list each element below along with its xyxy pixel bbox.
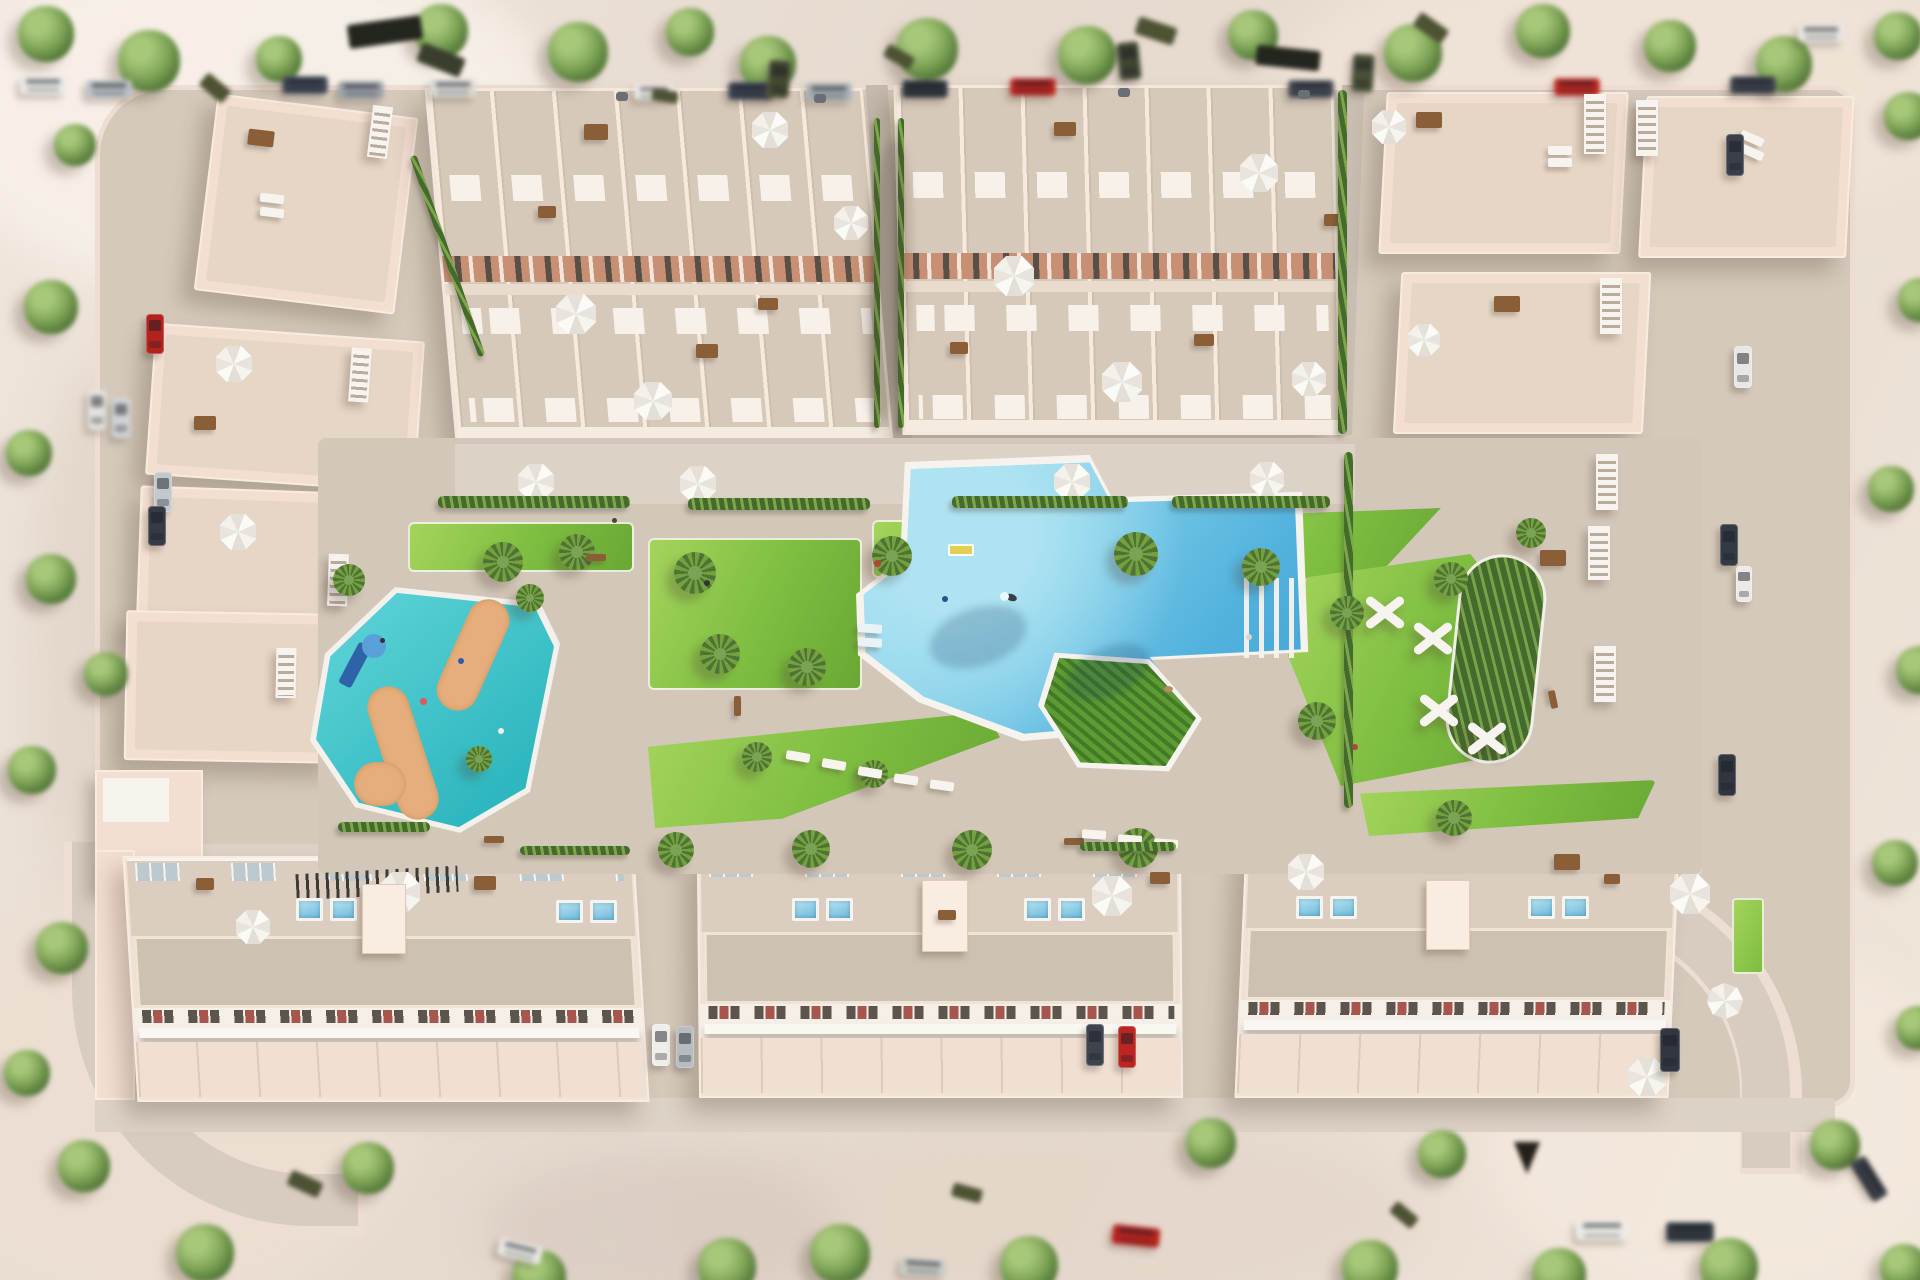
car [1718, 754, 1736, 796]
car [1736, 566, 1752, 602]
hedge [688, 498, 870, 510]
palm [658, 832, 694, 868]
tower [1426, 880, 1470, 950]
dot [612, 518, 617, 523]
scene-objects-layer [0, 0, 1920, 1280]
bench [484, 836, 504, 843]
bench [474, 876, 496, 890]
lounger [1548, 158, 1572, 167]
ppool [556, 900, 583, 923]
ppool [590, 900, 617, 923]
parasol [216, 346, 252, 382]
bench [734, 696, 741, 716]
kpath [430, 593, 516, 718]
bench [938, 910, 956, 920]
cross [1416, 688, 1462, 734]
car [652, 1024, 670, 1066]
parasol [994, 256, 1034, 296]
hedge [520, 846, 630, 855]
shadeb [921, 594, 1034, 680]
parasol [1703, 979, 1747, 1023]
lounger [785, 750, 810, 763]
parasol [680, 466, 716, 502]
bar [1298, 90, 1310, 99]
palm [674, 552, 716, 594]
hedge [410, 155, 486, 358]
palm [700, 634, 740, 674]
parasol [1408, 324, 1440, 356]
stair [1596, 454, 1618, 510]
lounger [1548, 146, 1572, 155]
parasol [1240, 154, 1278, 192]
parasol [634, 382, 672, 420]
dot [498, 728, 504, 734]
hedge [338, 822, 430, 832]
car [1118, 1026, 1136, 1068]
lounger [858, 623, 883, 634]
dot [420, 698, 427, 705]
palm [792, 830, 830, 868]
stair [1600, 278, 1622, 334]
parasol [752, 112, 788, 148]
dot [1352, 744, 1358, 750]
lounger [821, 758, 846, 771]
parasol [1092, 876, 1132, 916]
aerial-development-render [0, 0, 1920, 1280]
palm [788, 648, 826, 686]
ppool [330, 898, 357, 921]
bench [1548, 690, 1559, 709]
dot [704, 580, 710, 586]
ppool [826, 898, 853, 921]
palm [1114, 532, 1158, 576]
parasol [1250, 462, 1284, 496]
lounger [1082, 829, 1107, 840]
stair [348, 347, 372, 402]
bench [1416, 112, 1442, 128]
stair [1588, 526, 1610, 580]
bench [758, 298, 778, 310]
stair [276, 648, 297, 698]
dot [380, 638, 385, 643]
parasol [236, 910, 270, 944]
bench [1540, 550, 1566, 566]
lounger [929, 779, 954, 791]
hedge [438, 496, 630, 508]
hedge [1338, 90, 1347, 434]
grassrect [1732, 898, 1764, 974]
hedge [1080, 842, 1176, 851]
car [1660, 1028, 1680, 1072]
car [1720, 524, 1738, 566]
parasol [1372, 110, 1406, 144]
tower [362, 884, 406, 954]
ppool [1562, 896, 1589, 919]
lounger [893, 773, 918, 785]
palm [742, 742, 772, 772]
bench [586, 554, 606, 561]
parasol [1102, 362, 1142, 402]
bar [616, 92, 628, 101]
dot [458, 658, 464, 664]
shadeb [1058, 632, 1158, 712]
bench [194, 416, 216, 430]
bench [1494, 296, 1520, 312]
cross [1464, 716, 1510, 762]
parasol [1288, 854, 1324, 890]
bench [1554, 854, 1580, 870]
towel [948, 544, 974, 556]
cross [1362, 590, 1408, 636]
palm [1434, 562, 1468, 596]
dot [1246, 634, 1252, 640]
lounger [858, 637, 883, 648]
bench [1054, 122, 1076, 136]
shade [857, 137, 918, 423]
bar [1118, 88, 1130, 97]
palm [872, 536, 912, 576]
palm [333, 564, 365, 596]
hedge [1344, 452, 1353, 808]
bench [1604, 874, 1620, 884]
car [1726, 134, 1744, 176]
bar [814, 94, 826, 103]
palm [1330, 596, 1364, 630]
parasol [834, 206, 868, 240]
palm [952, 830, 992, 870]
stair [1594, 646, 1616, 702]
ppool [1024, 898, 1051, 921]
bench [247, 128, 275, 147]
car [1734, 346, 1752, 388]
car [676, 1026, 694, 1068]
car [1086, 1024, 1104, 1066]
cross [1410, 616, 1456, 662]
dot [874, 560, 881, 567]
dot [942, 596, 948, 602]
bench [584, 124, 608, 140]
ppool [296, 898, 323, 921]
hedge [1172, 496, 1330, 508]
palm [516, 584, 544, 612]
ppool [1296, 896, 1323, 919]
car [146, 314, 164, 354]
parasol [1670, 874, 1710, 914]
bench [696, 344, 718, 358]
palm [1298, 702, 1336, 740]
ppool [1330, 896, 1357, 919]
hedge [952, 496, 1128, 508]
ppool [1058, 898, 1085, 921]
parasol [518, 464, 554, 500]
parasol [556, 294, 596, 334]
bench [196, 878, 214, 890]
lounger [260, 193, 285, 205]
ppool [792, 898, 819, 921]
palm [1436, 800, 1472, 836]
lounger [260, 207, 285, 219]
dot [1000, 592, 1009, 601]
bench [950, 342, 968, 354]
palm [1242, 548, 1280, 586]
bench [1194, 334, 1214, 346]
parasol [220, 514, 256, 550]
palm [466, 746, 492, 772]
dot [1164, 686, 1173, 692]
bench [538, 206, 556, 218]
palm [1516, 518, 1546, 548]
stair [1636, 100, 1658, 156]
stair [1584, 94, 1606, 154]
parasol [1292, 362, 1326, 396]
stair [367, 105, 393, 159]
bench [1150, 872, 1170, 884]
ppool [1528, 896, 1555, 919]
palm [559, 534, 595, 570]
car [148, 506, 166, 546]
kpath [354, 762, 406, 806]
parasol [1054, 464, 1090, 500]
palm [483, 542, 523, 582]
